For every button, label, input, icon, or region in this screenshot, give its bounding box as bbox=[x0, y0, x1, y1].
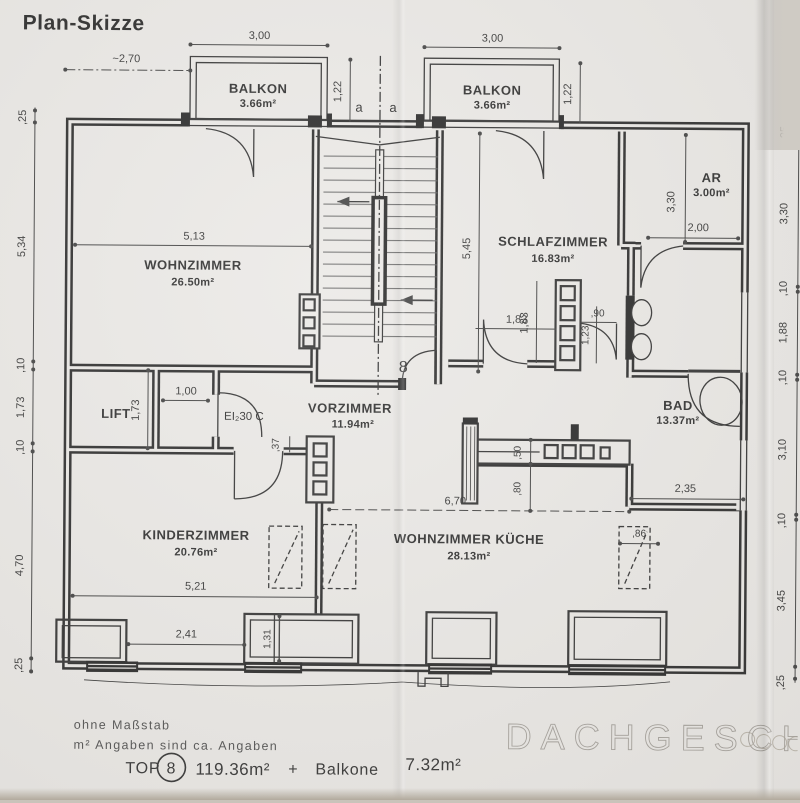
dim: ,80 bbox=[512, 481, 523, 495]
floor-plan-svg: Plan-Skizze DACHGESCHOSS BALKON 3.66m² B… bbox=[0, 0, 800, 803]
dim: ,86 bbox=[632, 529, 646, 540]
room-label-lift: LIFT bbox=[101, 406, 131, 421]
summary-unit-area: 119.36m² bbox=[195, 760, 270, 780]
room-area-schlafzimmer: 16.83m² bbox=[531, 253, 574, 265]
dim: 3,45 bbox=[776, 590, 788, 612]
stairwell bbox=[314, 55, 440, 398]
dim: 1,23 bbox=[580, 325, 591, 345]
room-area-balkon-left: 3.66m² bbox=[240, 98, 277, 110]
note-approx: m² Angaben sind ca. Angaben bbox=[74, 738, 279, 753]
fire-door-label: EI₂30 C bbox=[224, 411, 264, 423]
dim: 2,00 bbox=[687, 222, 709, 234]
room-label-schlafzimmer: SCHLAFZIMMER bbox=[498, 234, 608, 250]
washbasin-icon bbox=[631, 334, 651, 360]
dim: 3,00 bbox=[482, 33, 504, 45]
scanned-floor-plan-page: Plan-Skizze DACHGESCHOSS BALKON 3.66m² B… bbox=[0, 0, 800, 800]
room-label-wohnzimmer: WOHNZIMMER bbox=[144, 257, 242, 273]
dim: 3,10 bbox=[777, 439, 789, 461]
window-bays bbox=[56, 608, 666, 666]
room-label-bad: BAD bbox=[663, 398, 693, 413]
dim: ,37 bbox=[271, 438, 282, 452]
room-label-kinderzimmer: KINDERZIMMER bbox=[142, 527, 249, 543]
cabinet-stub bbox=[571, 424, 579, 440]
watermark-dachgeschoss: DACHGESCHOSS bbox=[506, 716, 800, 760]
summary-plus: + bbox=[288, 761, 298, 778]
dim: 5,13 bbox=[183, 230, 205, 242]
dim: 1,73 bbox=[130, 399, 142, 421]
room-area-kinderzimmer: 20.76m² bbox=[174, 546, 217, 558]
dim: 3,00 bbox=[249, 30, 271, 42]
dim: ,10 bbox=[778, 281, 790, 296]
summary-unit-number: 8 bbox=[167, 760, 177, 777]
dim: 1,73 bbox=[15, 397, 27, 419]
dim: 5,21 bbox=[185, 581, 207, 593]
dim: 3,30 bbox=[778, 203, 790, 225]
stair-top-kink bbox=[316, 136, 440, 145]
dim: ,10 bbox=[776, 513, 788, 528]
dim: 1,22 bbox=[562, 83, 574, 105]
room-label-vorz: VORZIMMER bbox=[308, 400, 392, 416]
summary-balcony-area: 7.32m² bbox=[405, 755, 461, 774]
page-title: Plan-Skizze bbox=[23, 11, 145, 35]
dim: ,25 bbox=[779, 126, 791, 141]
dim: 6,70 bbox=[445, 495, 467, 507]
dim: ,10 bbox=[777, 370, 789, 385]
stair-treads-left bbox=[322, 149, 375, 341]
stair-treads-right bbox=[382, 150, 437, 342]
dim: 5,34 bbox=[16, 236, 28, 258]
room-label-balkon-left: BALKON bbox=[229, 81, 288, 96]
room-area-bad: 13.37m² bbox=[656, 415, 699, 427]
dim: 3,30 bbox=[665, 191, 677, 213]
footer: ohne Maßstab m² Angaben sind ca. Angaben… bbox=[73, 718, 461, 784]
room-area-balkon-right: 3.66m² bbox=[474, 100, 511, 112]
dim: 1,00 bbox=[175, 385, 197, 397]
room-area-ar: 3.00m² bbox=[693, 187, 730, 199]
washbasin-icon bbox=[632, 300, 652, 326]
bathtub-icon bbox=[697, 375, 745, 428]
dim: ,25 bbox=[17, 110, 29, 125]
dim: 2,41 bbox=[176, 628, 198, 640]
dimension-dots bbox=[29, 41, 800, 680]
room-area-wohnzimmer: 26.50m² bbox=[171, 276, 214, 288]
dim: ,10 bbox=[15, 358, 27, 373]
dim: 2,35 bbox=[675, 483, 697, 495]
dim-approx: ~2,70 bbox=[112, 53, 140, 65]
dim: 4,70 bbox=[14, 555, 26, 577]
plan-drawing-tilt-wrap: Plan-Skizze DACHGESCHOSS BALKON 3.66m² B… bbox=[0, 0, 800, 803]
dim: ,10 bbox=[15, 440, 27, 455]
dim: ,50 bbox=[513, 445, 524, 459]
room-area-vorz: 11.94m² bbox=[332, 419, 375, 431]
dim: 1,83 bbox=[518, 312, 530, 334]
room-area-kueche: 28.13m² bbox=[447, 550, 490, 562]
note-no-scale: ohne Maßstab bbox=[74, 718, 171, 733]
summary-top-label: TOP bbox=[125, 760, 160, 777]
dim: ,90 bbox=[591, 308, 605, 319]
dim: 1,88 bbox=[777, 322, 789, 344]
dim: 5,45 bbox=[461, 238, 473, 260]
dim: 1,31 bbox=[262, 629, 273, 649]
section-marker-a-right: a bbox=[389, 100, 397, 115]
room-label-kueche: WOHNZIMMER KÜCHE bbox=[394, 531, 544, 547]
room-label-balkon-right: BALKON bbox=[463, 82, 522, 97]
entry-unit-number: 8 bbox=[399, 359, 408, 376]
summary-balcony-label: Balkone bbox=[315, 761, 379, 778]
room-label-ar: AR bbox=[702, 170, 722, 185]
section-marker-a-left: a bbox=[355, 100, 363, 115]
dimension-lines bbox=[29, 41, 800, 682]
dim: ,25 bbox=[775, 675, 787, 690]
dim: ,25 bbox=[13, 658, 25, 673]
dim: 1,22 bbox=[332, 81, 344, 103]
